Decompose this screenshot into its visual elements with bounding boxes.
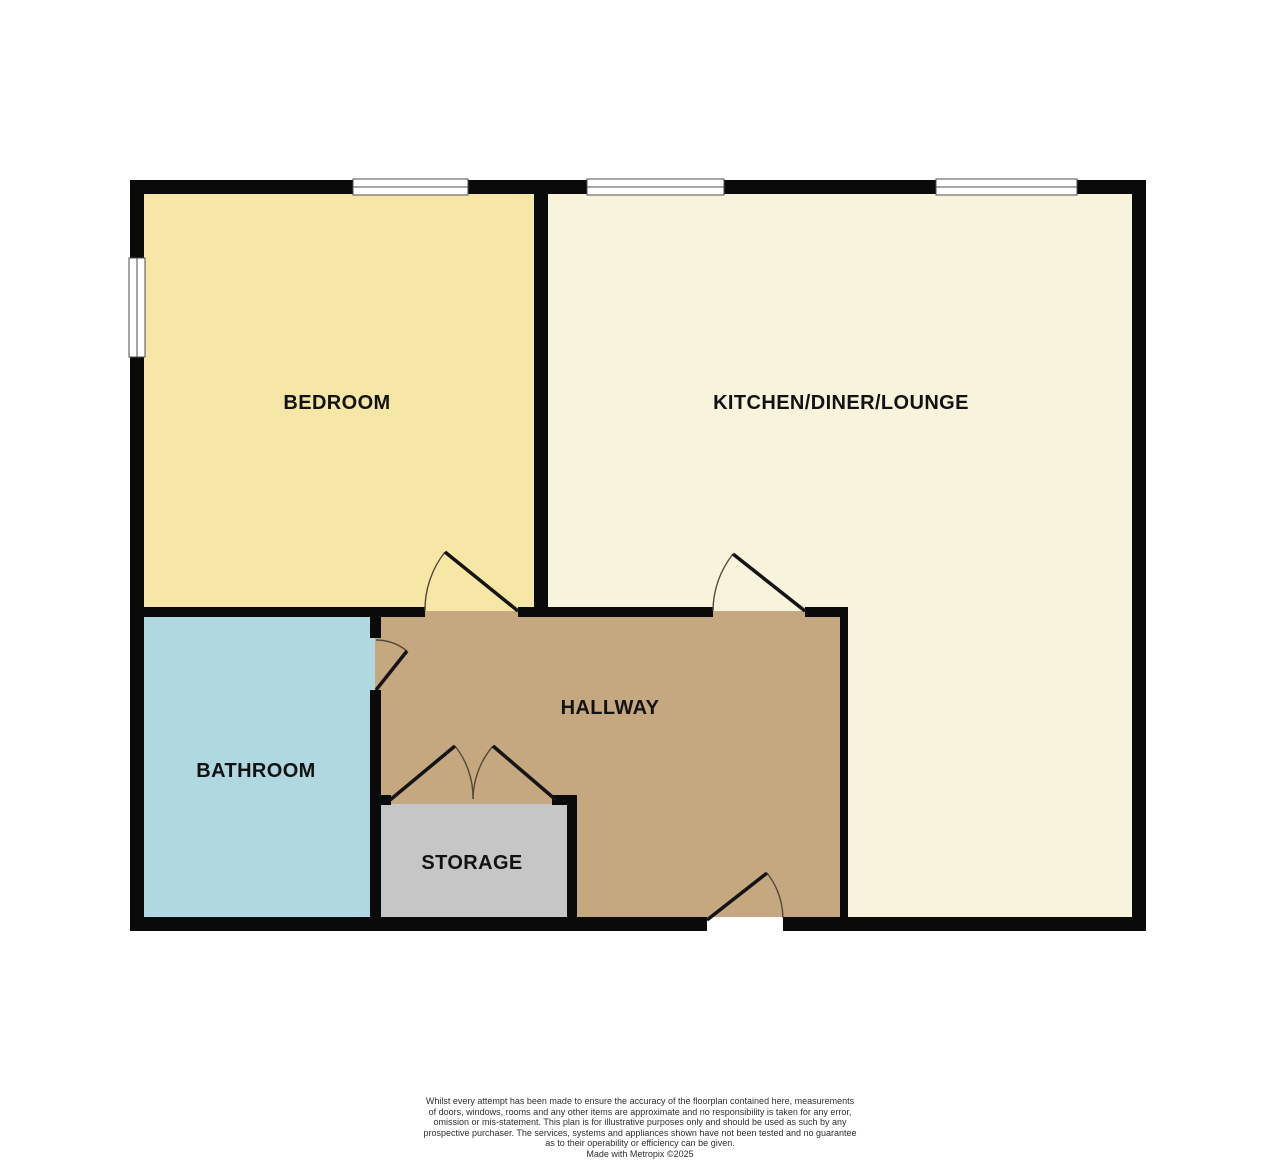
wall-hallway-top-middle [518, 607, 713, 617]
bathroom-label: BATHROOM [196, 760, 315, 782]
disclaimer-line: as to their operability or efficiency ca… [0, 1138, 1280, 1149]
kitchen-diner-lounge-label: KITCHEN/DINER/LOUNGE [713, 392, 969, 414]
disclaimer: Whilst every attempt has been made to en… [0, 1096, 1280, 1160]
wall-outer-bottom-right [783, 917, 1146, 931]
window-bedroom-top [353, 179, 468, 195]
wall-storage-right [567, 795, 577, 917]
wall-storage-stub-left [377, 795, 391, 805]
disclaimer-line: omission or mis-statement. This plan is … [0, 1117, 1280, 1128]
wall-outer-right [1132, 180, 1146, 931]
window-kitchen-top-left [587, 179, 724, 195]
disclaimer-line: Whilst every attempt has been made to en… [0, 1096, 1280, 1107]
metropix-credit: Made with Metropix ©2025 [0, 1149, 1280, 1160]
window-kitchen-top-right [936, 179, 1077, 195]
wall-bathroom-hallway-upper [370, 611, 381, 638]
window-bedroom-left [129, 258, 145, 357]
storage-label: STORAGE [421, 852, 522, 874]
bedroom-label: BEDROOM [283, 392, 390, 414]
disclaimer-line: prospective purchaser. The services, sys… [0, 1128, 1280, 1139]
room-floors [144, 194, 1132, 917]
wall-outer-bottom-left [130, 917, 707, 931]
wall-hallway-top-left [144, 607, 425, 617]
floorplan-page: BEDROOM KITCHEN/DINER/LOUNGE BATHROOM HA… [0, 0, 1280, 1161]
floorplan-svg: BEDROOM KITCHEN/DINER/LOUNGE BATHROOM HA… [0, 0, 1280, 1000]
hallway-label: HALLWAY [561, 697, 660, 719]
wall-bedroom-kitchen [534, 194, 548, 617]
disclaimer-line: of doors, windows, rooms and any other i… [0, 1107, 1280, 1118]
wall-hallway-kitchen [840, 607, 848, 917]
